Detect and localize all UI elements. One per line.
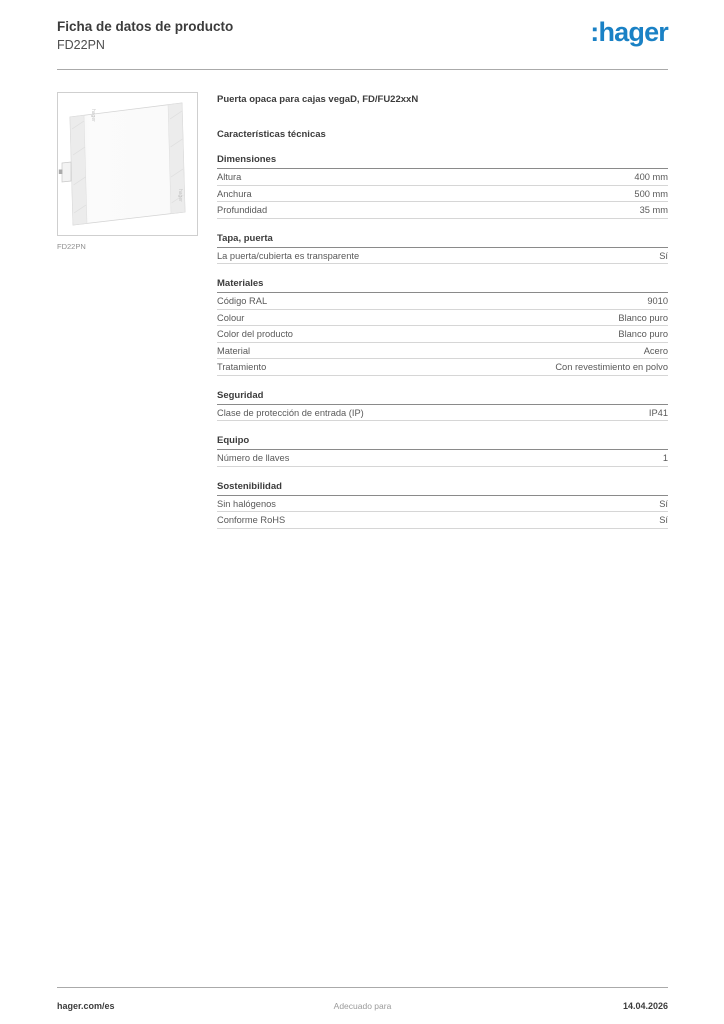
- spec-section: Tapa, puertaLa puerta/cubierta es transp…: [217, 233, 668, 265]
- spec-section: SeguridadClase de protección de entrada …: [217, 390, 668, 422]
- specs-column: Puerta opaca para cajas vegaD, FD/FU22xx…: [217, 92, 668, 529]
- main-content: hager hager FD22PN Puerta opaca para caj…: [57, 92, 668, 529]
- spec-value: Blanco puro: [606, 313, 668, 323]
- spec-section-title: Dimensiones: [217, 154, 668, 169]
- table-row: Altura400 mm: [217, 169, 668, 186]
- table-row: Conforme RoHSSí: [217, 512, 668, 529]
- panel-brand-text-top: hager: [90, 109, 96, 122]
- spec-label: Sin halógenos: [217, 499, 276, 509]
- spec-label: Color del producto: [217, 329, 293, 339]
- spec-value: Con revestimiento en polvo: [543, 362, 668, 372]
- spec-section-title: Sostenibilidad: [217, 481, 668, 496]
- footer-suitable-for-label: Adecuado para: [57, 1001, 668, 1011]
- datasheet-page: Ficha de datos de producto FD22PN :hager: [0, 0, 724, 1024]
- spec-section: SostenibilidadSin halógenosSíConforme Ro…: [217, 481, 668, 529]
- footer: hager.com/es Adecuado para 14.04.2026: [57, 1001, 668, 1011]
- table-row: TratamientoCon revestimiento en polvo: [217, 359, 668, 376]
- page-title: Ficha de datos de producto: [57, 19, 668, 36]
- table-row: Sin halógenosSí: [217, 496, 668, 513]
- spec-value: Sí: [647, 251, 668, 261]
- spec-value: Acero: [632, 346, 668, 356]
- spec-label: La puerta/cubierta es transparente: [217, 251, 359, 261]
- spec-label: Altura: [217, 172, 241, 182]
- product-image: hager hager: [57, 92, 198, 236]
- spec-label: Anchura: [217, 189, 252, 199]
- spec-label: Clase de protección de entrada (IP): [217, 408, 364, 418]
- table-row: Color del productoBlanco puro: [217, 326, 668, 343]
- spec-label: Colour: [217, 313, 244, 323]
- spec-value: 35 mm: [628, 205, 668, 215]
- spec-value: 9010: [635, 296, 668, 306]
- latch-pin: [59, 170, 63, 175]
- spec-section-title: Materiales: [217, 278, 668, 293]
- characteristics-heading: Características técnicas: [217, 129, 668, 140]
- spec-label: Conforme RoHS: [217, 515, 285, 525]
- product-image-column: hager hager FD22PN: [57, 92, 217, 529]
- spec-section: DimensionesAltura400 mmAnchura500 mmProf…: [217, 154, 668, 219]
- spec-value: IP41: [637, 408, 668, 418]
- table-row: La puerta/cubierta es transparenteSí: [217, 248, 668, 265]
- spec-section-title: Tapa, puerta: [217, 233, 668, 248]
- spec-label: Tratamiento: [217, 362, 266, 372]
- spec-label: Profundidad: [217, 205, 267, 215]
- product-title: Puerta opaca para cajas vegaD, FD/FU22xx…: [217, 94, 668, 105]
- door-latch: [62, 162, 71, 182]
- spec-value: 1: [651, 453, 668, 463]
- spec-value: Blanco puro: [606, 329, 668, 339]
- spec-section: EquipoNúmero de llaves1: [217, 435, 668, 467]
- door-panel-illustration: hager hager: [58, 93, 197, 235]
- table-row: Anchura500 mm: [217, 186, 668, 203]
- spec-value: 400 mm: [622, 172, 668, 182]
- spec-label: Número de llaves: [217, 453, 289, 463]
- header: Ficha de datos de producto FD22PN :hager: [57, 19, 668, 53]
- product-reference: FD22PN: [57, 38, 668, 53]
- spec-value: Sí: [647, 499, 668, 509]
- table-row: ColourBlanco puro: [217, 310, 668, 327]
- spec-section-title: Equipo: [217, 435, 668, 450]
- table-row: Código RAL9010: [217, 293, 668, 310]
- panel-brand-text-bottom: hager: [177, 189, 183, 202]
- spec-sections: DimensionesAltura400 mmAnchura500 mmProf…: [217, 154, 668, 529]
- table-row: Clase de protección de entrada (IP)IP41: [217, 405, 668, 422]
- image-caption: FD22PN: [57, 242, 217, 251]
- spec-section: MaterialesCódigo RAL9010ColourBlanco pur…: [217, 278, 668, 376]
- hager-logo: :hager: [590, 19, 668, 46]
- spec-label: Código RAL: [217, 296, 267, 306]
- spec-section-title: Seguridad: [217, 390, 668, 405]
- footer-divider: [57, 987, 668, 988]
- table-row: MaterialAcero: [217, 343, 668, 360]
- table-row: Profundidad35 mm: [217, 202, 668, 219]
- spec-value: 500 mm: [622, 189, 668, 199]
- table-row: Número de llaves1: [217, 450, 668, 467]
- spec-value: Sí: [647, 515, 668, 525]
- header-divider: [57, 69, 668, 70]
- spec-label: Material: [217, 346, 250, 356]
